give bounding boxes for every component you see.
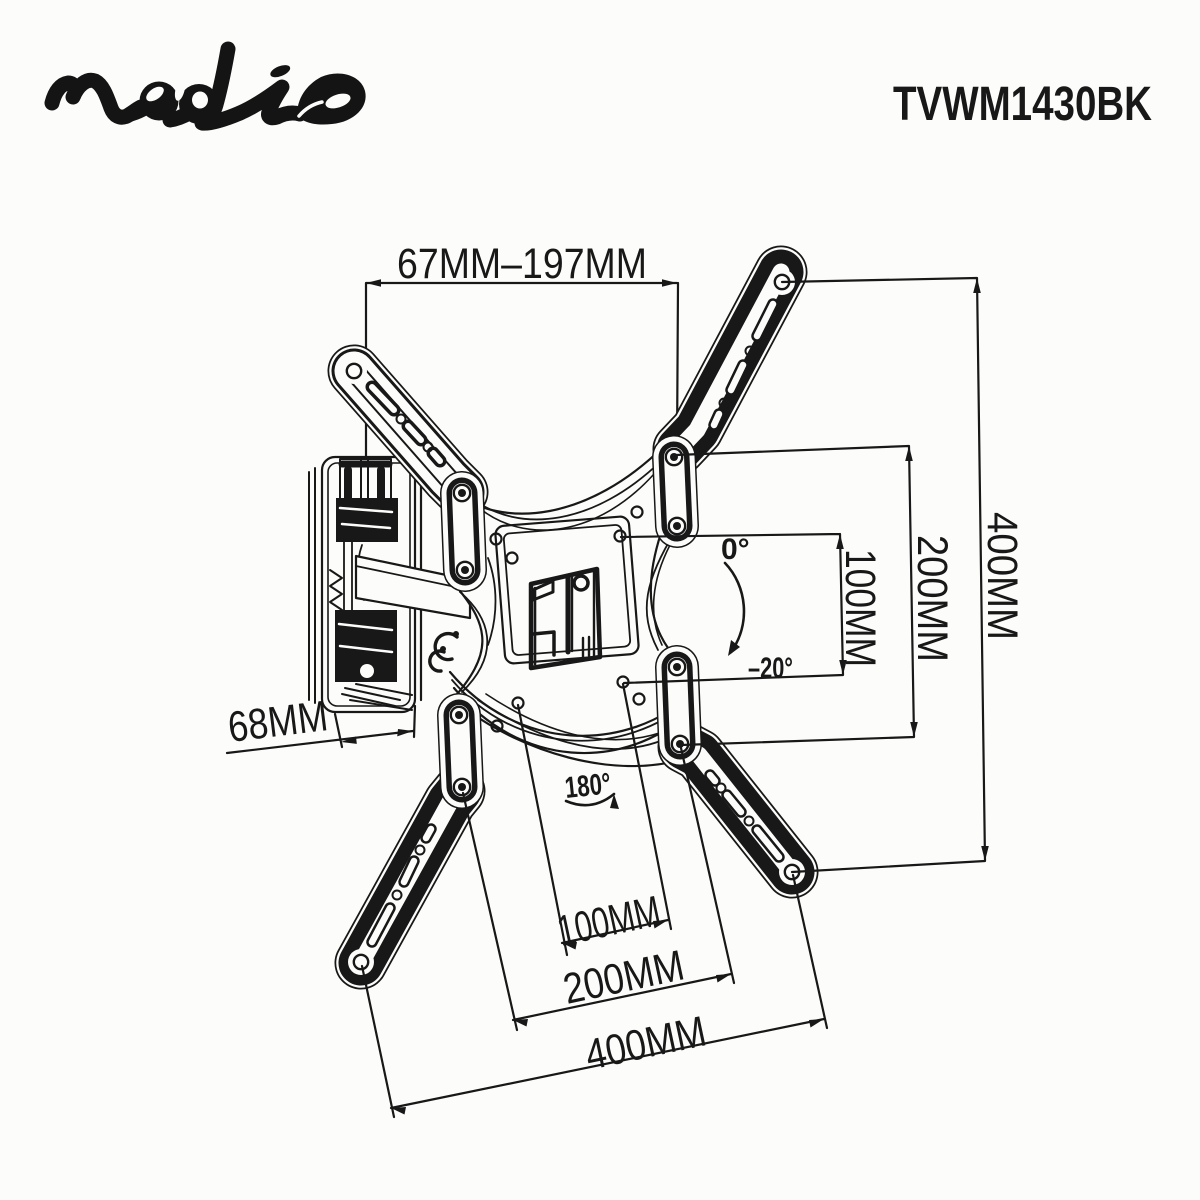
svg-text:400MM: 400MM — [581, 1007, 710, 1079]
svg-text:67MM–197MM: 67MM–197MM — [397, 240, 647, 288]
svg-text:0°: 0° — [721, 533, 750, 566]
svg-text:100MM: 100MM — [836, 549, 884, 667]
svg-text:200MM: 200MM — [908, 535, 956, 662]
svg-text:–20°: –20° — [748, 652, 793, 685]
svg-text:TVWM1430BK: TVWM1430BK — [893, 78, 1152, 131]
svg-text:100MM: 100MM — [553, 887, 665, 956]
svg-text:400MM: 400MM — [978, 512, 1026, 640]
